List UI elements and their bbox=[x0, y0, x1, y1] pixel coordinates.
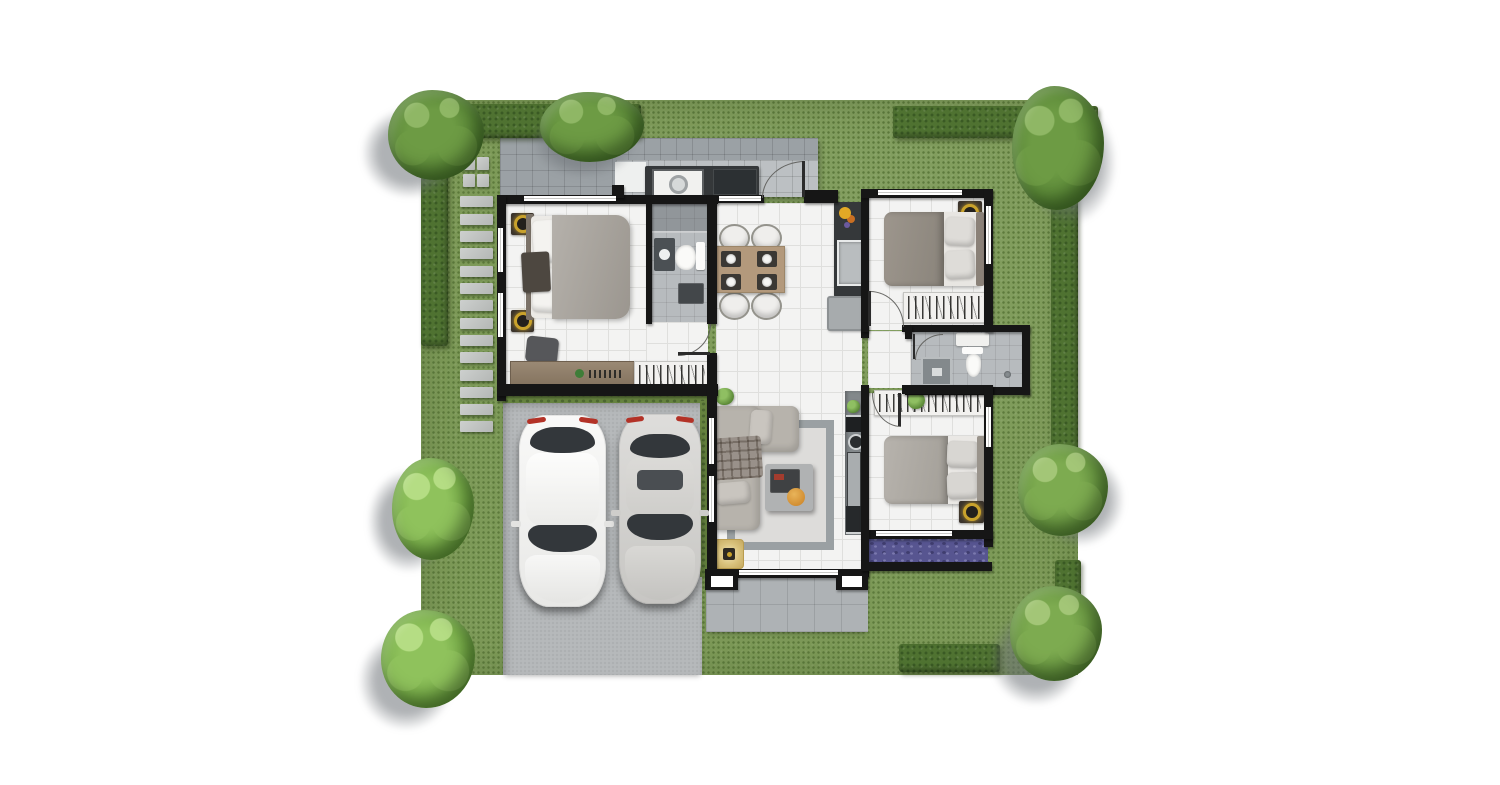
floor-plan-scene bbox=[0, 0, 1500, 785]
stepping-stone bbox=[460, 214, 493, 225]
wall bbox=[905, 325, 912, 339]
silver-sedan bbox=[619, 414, 701, 604]
basin-icon bbox=[932, 368, 942, 376]
window bbox=[498, 228, 503, 272]
car-roof bbox=[526, 453, 599, 525]
stepping-stone bbox=[460, 266, 493, 277]
stepping-stone bbox=[477, 174, 489, 187]
stepping-stone bbox=[460, 421, 493, 432]
window bbox=[709, 418, 714, 464]
tree bbox=[1010, 586, 1102, 681]
sunroof bbox=[637, 470, 683, 490]
dining-chair bbox=[719, 292, 750, 320]
wall bbox=[1022, 325, 1030, 395]
stepping-stone bbox=[460, 370, 493, 381]
window bbox=[986, 407, 991, 447]
rear-window bbox=[530, 427, 594, 453]
media-cabinet bbox=[846, 506, 861, 534]
window bbox=[524, 196, 616, 201]
counter-decor-icon bbox=[839, 207, 851, 219]
hedge-row bbox=[899, 644, 1000, 672]
toilet-tank bbox=[696, 242, 705, 270]
pillow bbox=[947, 440, 980, 468]
place-setting bbox=[721, 251, 741, 267]
door-leaf bbox=[678, 352, 710, 355]
side-mirror-icon bbox=[611, 510, 621, 516]
pier-inset bbox=[711, 576, 733, 587]
wall bbox=[804, 190, 838, 203]
lamp-icon bbox=[963, 503, 981, 521]
stepping-stone bbox=[460, 248, 493, 259]
side-mirror-icon bbox=[604, 521, 614, 527]
stepping-stone bbox=[460, 196, 493, 207]
bed-3-duvet bbox=[884, 436, 948, 504]
window bbox=[878, 190, 962, 195]
pillow bbox=[944, 249, 975, 280]
shower-zone bbox=[652, 204, 708, 233]
pillow bbox=[947, 471, 980, 499]
lamp-base-icon bbox=[723, 548, 735, 560]
stepping-stone bbox=[460, 404, 493, 415]
plate-icon bbox=[726, 277, 736, 287]
sofa-cushion bbox=[715, 481, 751, 506]
nightstand bbox=[959, 501, 984, 523]
fruit-bowl-icon bbox=[787, 488, 805, 506]
window bbox=[498, 293, 503, 337]
wall bbox=[861, 390, 869, 577]
bed-runner bbox=[521, 251, 551, 292]
taillight-icon bbox=[626, 416, 645, 423]
taillight-icon bbox=[527, 417, 547, 425]
wardrobe bbox=[903, 292, 987, 323]
tree bbox=[381, 610, 475, 708]
sink-icon bbox=[659, 249, 670, 260]
washer-drum-icon bbox=[669, 175, 688, 194]
wall bbox=[902, 385, 993, 394]
shower-drain-icon bbox=[1004, 371, 1011, 378]
windshield bbox=[627, 514, 693, 540]
window bbox=[709, 476, 714, 522]
door-leaf bbox=[913, 334, 915, 359]
stepping-stone bbox=[460, 387, 493, 398]
stepping-stone bbox=[460, 231, 493, 242]
stepping-stone bbox=[460, 335, 493, 346]
dining-chair bbox=[751, 292, 782, 320]
wall bbox=[902, 325, 1030, 332]
plate-icon bbox=[762, 254, 772, 264]
bed-2-duvet bbox=[884, 212, 944, 286]
side-mirror-icon bbox=[511, 521, 521, 527]
side-mirror-icon bbox=[699, 510, 709, 516]
sliding-door bbox=[739, 570, 838, 575]
tray-book bbox=[774, 474, 784, 480]
windshield bbox=[528, 525, 598, 552]
stepping-stone bbox=[460, 300, 493, 311]
bath-shelf bbox=[678, 283, 704, 304]
bathroom-vanity bbox=[956, 333, 989, 346]
car-hood bbox=[625, 546, 696, 600]
door-leaf bbox=[868, 291, 871, 326]
pillow bbox=[944, 216, 975, 247]
wall bbox=[707, 195, 717, 324]
stepping-stone bbox=[460, 352, 493, 363]
wall bbox=[707, 353, 717, 577]
door-leaf bbox=[898, 393, 901, 426]
toilet-tank bbox=[962, 347, 983, 354]
window bbox=[719, 196, 761, 201]
media-box bbox=[846, 415, 861, 432]
stepping-stone bbox=[460, 318, 493, 329]
plate-icon bbox=[726, 254, 736, 264]
taillight-icon bbox=[675, 416, 694, 423]
stepping-stone bbox=[477, 157, 489, 170]
wall bbox=[497, 384, 718, 396]
window bbox=[876, 531, 952, 536]
floor-lamp bbox=[714, 539, 744, 569]
wall bbox=[646, 203, 652, 324]
place-setting bbox=[757, 274, 777, 290]
pier-inset bbox=[842, 576, 862, 587]
hangers-icon bbox=[908, 296, 982, 319]
hallway-floor bbox=[868, 331, 912, 388]
white-sedan bbox=[519, 415, 606, 607]
master-bed-duvet bbox=[552, 215, 630, 319]
wall bbox=[861, 325, 869, 332]
garden-wall bbox=[861, 562, 992, 571]
hedge-row bbox=[1051, 186, 1078, 458]
bed-2-headboard bbox=[976, 212, 984, 286]
desk-books bbox=[589, 370, 623, 378]
plaid-throw bbox=[711, 435, 764, 480]
window bbox=[986, 206, 991, 264]
bathroom-vanity bbox=[654, 238, 675, 271]
hangers-icon bbox=[639, 365, 705, 385]
bath-sink bbox=[921, 357, 952, 386]
place-setting bbox=[721, 274, 741, 290]
place-setting bbox=[757, 251, 777, 267]
plant-pot-icon bbox=[575, 369, 584, 378]
plate-icon bbox=[762, 277, 772, 287]
laundry-cabinet bbox=[713, 169, 757, 195]
car-hood bbox=[525, 555, 600, 603]
rear-window bbox=[630, 434, 691, 458]
toilet-bowl bbox=[675, 245, 696, 270]
door-leaf bbox=[802, 161, 805, 197]
stepping-stone bbox=[463, 174, 475, 187]
stepping-stone bbox=[460, 283, 493, 294]
